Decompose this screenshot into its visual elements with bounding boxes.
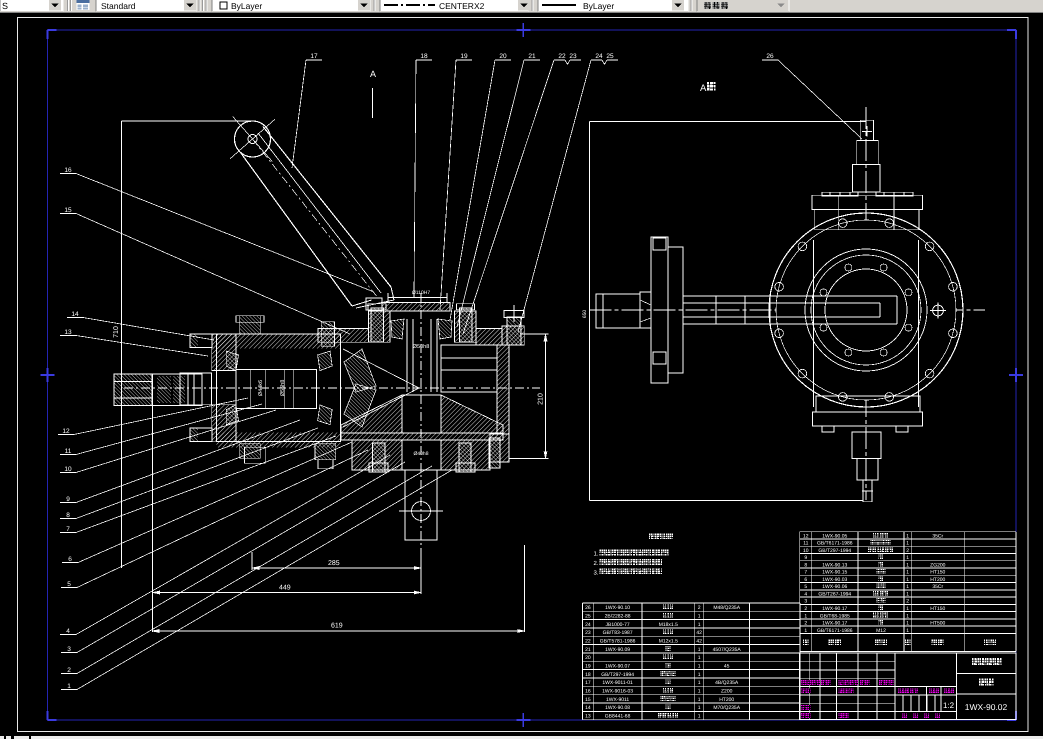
- svg-text:GB/T5781-1986: GB/T5781-1986: [600, 638, 636, 644]
- svg-text:Standard: Standard: [101, 1, 136, 11]
- svg-text:10: 10: [64, 466, 72, 473]
- svg-text:1WX-90.09: 1WX-90.09: [605, 647, 630, 653]
- svg-text:1: 1: [906, 563, 909, 569]
- svg-text:GB/T6171-1986: GB/T6171-1986: [817, 628, 853, 634]
- svg-text:16: 16: [64, 167, 72, 174]
- svg-text:Ø44k6: Ø44k6: [258, 380, 264, 396]
- svg-text:1: 1: [804, 628, 807, 634]
- svg-text:2: 2: [906, 599, 909, 605]
- svg-text:2: 2: [906, 548, 909, 554]
- svg-text:1: 1: [906, 613, 909, 619]
- svg-text:1WX-90.17: 1WX-90.17: [822, 621, 847, 627]
- svg-text:1: 1: [906, 570, 909, 576]
- svg-text:M48/Q235A: M48/Q235A: [713, 605, 740, 611]
- svg-text:3: 3: [804, 599, 807, 605]
- svg-text:1.: 1.: [594, 551, 599, 558]
- svg-text:10: 10: [803, 548, 809, 554]
- svg-text:HT200: HT200: [930, 577, 945, 583]
- svg-text:4: 4: [66, 628, 70, 635]
- svg-text:1: 1: [698, 622, 701, 628]
- svg-text:1WX-90.15: 1WX-90.15: [822, 570, 847, 576]
- svg-text:1: 1: [698, 714, 701, 720]
- svg-text:9: 9: [804, 555, 807, 561]
- svg-text:1WX-90.17: 1WX-90.17: [822, 606, 847, 612]
- svg-text:1WX-90.06: 1WX-90.06: [822, 584, 847, 590]
- svg-text:7: 7: [804, 570, 807, 576]
- svg-text:GB/T68-1985: GB/T68-1985: [820, 613, 850, 619]
- svg-text:45: 45: [724, 664, 730, 670]
- svg-text:2.: 2.: [594, 560, 599, 567]
- svg-text:6: 6: [804, 577, 807, 583]
- svg-text:22: 22: [585, 638, 591, 644]
- svg-text:16: 16: [585, 689, 591, 695]
- svg-text:4: 4: [804, 592, 807, 598]
- svg-text:1: 1: [906, 555, 909, 561]
- svg-text:GB/T297-1994: GB/T297-1994: [818, 548, 851, 554]
- svg-text:19: 19: [585, 664, 591, 670]
- svg-text:21: 21: [585, 647, 591, 653]
- svg-text:13: 13: [64, 329, 72, 336]
- svg-text:1: 1: [698, 680, 701, 686]
- svg-text:HT500: HT500: [930, 621, 945, 627]
- svg-text:Ø55h8: Ø55h8: [280, 380, 286, 397]
- svg-text:18: 18: [585, 672, 591, 678]
- svg-text:1: 1: [698, 647, 701, 653]
- svg-text:M18x1.5: M18x1.5: [659, 622, 678, 628]
- svg-text:1WX-9011-01: 1WX-9011-01: [602, 680, 633, 686]
- svg-text:1: 1: [906, 592, 909, 598]
- svg-text:1:2: 1:2: [943, 701, 955, 710]
- svg-text:12: 12: [803, 533, 809, 539]
- svg-text:2: 2: [698, 605, 701, 611]
- svg-text:GB/T6171-1986: GB/T6171-1986: [817, 541, 853, 547]
- svg-text:11: 11: [803, 541, 808, 547]
- svg-text:35Cr: 35Cr: [932, 584, 943, 590]
- svg-text:285: 285: [328, 560, 340, 567]
- svg-text:1: 1: [698, 705, 701, 711]
- svg-text:2: 2: [804, 621, 807, 627]
- svg-text:26: 26: [585, 605, 591, 611]
- svg-text:GB8441-68: GB8441-68: [605, 714, 631, 720]
- svg-text:23: 23: [585, 630, 591, 636]
- svg-text:A: A: [370, 69, 376, 79]
- svg-text:1WX-90.08: 1WX-90.08: [605, 705, 630, 711]
- svg-text:25: 25: [585, 613, 591, 619]
- svg-text:24: 24: [595, 53, 603, 60]
- svg-text:1WX-90.07: 1WX-90.07: [605, 664, 630, 670]
- svg-text:21: 21: [528, 53, 536, 60]
- svg-text:8: 8: [66, 512, 70, 519]
- svg-text:1: 1: [67, 683, 71, 690]
- svg-text:13: 13: [585, 714, 591, 720]
- svg-text:17: 17: [585, 680, 591, 686]
- svg-text:1WX-90.03: 1WX-90.03: [822, 577, 847, 583]
- svg-text:1: 1: [906, 584, 909, 590]
- svg-text:1: 1: [698, 664, 701, 670]
- svg-text:ByLayer: ByLayer: [231, 1, 262, 11]
- svg-text:1: 1: [906, 541, 909, 547]
- svg-text:17: 17: [310, 53, 318, 60]
- svg-text:HT200: HT200: [719, 697, 734, 703]
- svg-text:M12: M12: [876, 628, 886, 634]
- svg-text:1WX-90.02: 1WX-90.02: [965, 702, 1008, 712]
- svg-text:15: 15: [585, 697, 591, 703]
- svg-text:1: 1: [906, 628, 909, 634]
- svg-text:1WX-9011: 1WX-9011: [606, 697, 629, 703]
- svg-text:S: S: [2, 1, 8, 11]
- svg-text:JB1000-77: JB1000-77: [606, 622, 630, 628]
- svg-text:24: 24: [585, 622, 591, 628]
- svg-text:1: 1: [804, 613, 807, 619]
- svg-text:14: 14: [71, 311, 79, 318]
- svg-text:GB/T297-1994: GB/T297-1994: [601, 672, 634, 678]
- svg-text:710: 710: [113, 326, 120, 338]
- svg-text:1: 1: [698, 672, 701, 678]
- svg-text:Ø40h8: Ø40h8: [413, 451, 428, 457]
- svg-text:11: 11: [65, 448, 72, 455]
- svg-text:5: 5: [804, 584, 807, 590]
- svg-text:1WX-90.13: 1WX-90.13: [822, 563, 847, 569]
- svg-text:20: 20: [585, 655, 591, 661]
- svg-text:2: 2: [804, 606, 807, 612]
- svg-text:3: 3: [67, 646, 71, 653]
- svg-text:1: 1: [698, 655, 701, 661]
- svg-text:1WX-90.05: 1WX-90.05: [822, 533, 847, 539]
- svg-text:HT150: HT150: [930, 570, 945, 576]
- svg-text:20: 20: [499, 53, 507, 60]
- svg-text:5: 5: [67, 581, 71, 588]
- svg-text:6: 6: [68, 556, 72, 563]
- svg-text:A: A: [700, 83, 707, 94]
- svg-text:M70/Q235A: M70/Q235A: [713, 705, 740, 711]
- svg-text:1: 1: [906, 577, 909, 583]
- svg-text:15: 15: [64, 207, 72, 214]
- svg-text:12: 12: [62, 428, 70, 435]
- svg-text:ByLayer: ByLayer: [583, 1, 614, 11]
- svg-text:Ø110H7: Ø110H7: [412, 290, 430, 296]
- svg-text:1WX-9016-03: 1WX-9016-03: [602, 689, 633, 695]
- svg-text:19: 19: [460, 53, 468, 60]
- svg-text:9: 9: [66, 496, 70, 503]
- svg-text:7: 7: [66, 526, 70, 533]
- svg-text:42: 42: [696, 638, 702, 644]
- svg-text:1: 1: [698, 689, 701, 695]
- svg-text:4B/Q235A: 4B/Q235A: [715, 680, 739, 686]
- svg-text:GB/T83-1987: GB/T83-1987: [603, 630, 633, 636]
- svg-text:2B/2282-88: 2B/2282-88: [605, 613, 631, 619]
- svg-text:25: 25: [606, 53, 614, 60]
- svg-text:HT150: HT150: [930, 606, 945, 612]
- svg-text:Z200: Z200: [721, 689, 733, 695]
- svg-text:210: 210: [538, 393, 545, 405]
- svg-text:CENTERX2: CENTERX2: [439, 1, 485, 11]
- svg-text:1: 1: [906, 533, 909, 539]
- svg-text:1WX-90.10: 1WX-90.10: [605, 605, 630, 611]
- svg-text:Ø50h8: Ø50h8: [413, 344, 430, 350]
- svg-text:619: 619: [331, 623, 343, 630]
- svg-text:1: 1: [698, 697, 701, 703]
- svg-text:2: 2: [67, 667, 71, 674]
- svg-text:35Cr: 35Cr: [932, 533, 943, 539]
- svg-text:22: 22: [558, 53, 566, 60]
- svg-text:1: 1: [698, 613, 701, 619]
- svg-text:M12x1.5: M12x1.5: [659, 638, 678, 644]
- svg-text:3.: 3.: [594, 569, 599, 576]
- svg-text:650: 650: [582, 310, 588, 319]
- svg-text:4507/Q235A: 4507/Q235A: [713, 647, 742, 653]
- svg-text:1: 1: [906, 621, 909, 627]
- svg-text:GB/T267-1994: GB/T267-1994: [818, 592, 851, 598]
- svg-text:8: 8: [804, 563, 807, 569]
- svg-text:23: 23: [569, 53, 577, 60]
- svg-text:ZG200: ZG200: [930, 563, 946, 569]
- svg-text:14: 14: [585, 705, 591, 711]
- svg-text:449: 449: [279, 585, 291, 592]
- svg-text:1: 1: [906, 606, 909, 612]
- svg-text:42: 42: [696, 630, 702, 636]
- svg-text:18: 18: [420, 53, 428, 60]
- svg-text:26: 26: [766, 53, 774, 60]
